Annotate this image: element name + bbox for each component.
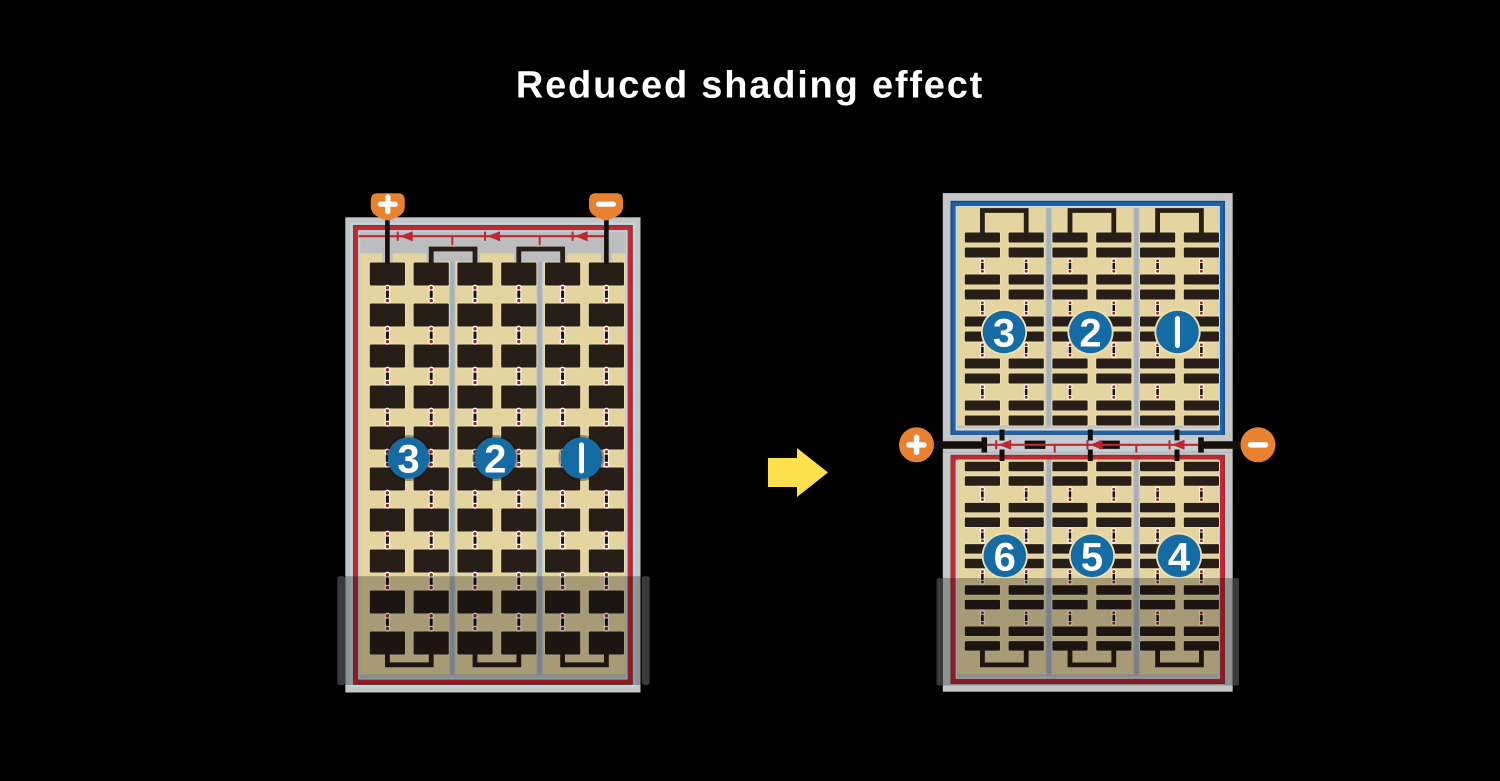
svg-text:6: 6 [994,535,1016,579]
svg-text:Reduced shading effect: Reduced shading effect [516,65,984,107]
svg-text:3: 3 [397,438,419,482]
svg-text:4: 4 [1168,535,1191,579]
svg-text:3: 3 [993,312,1015,356]
svg-text:5: 5 [1081,535,1103,579]
svg-text:2: 2 [1079,312,1101,356]
svg-text:2: 2 [484,438,506,482]
